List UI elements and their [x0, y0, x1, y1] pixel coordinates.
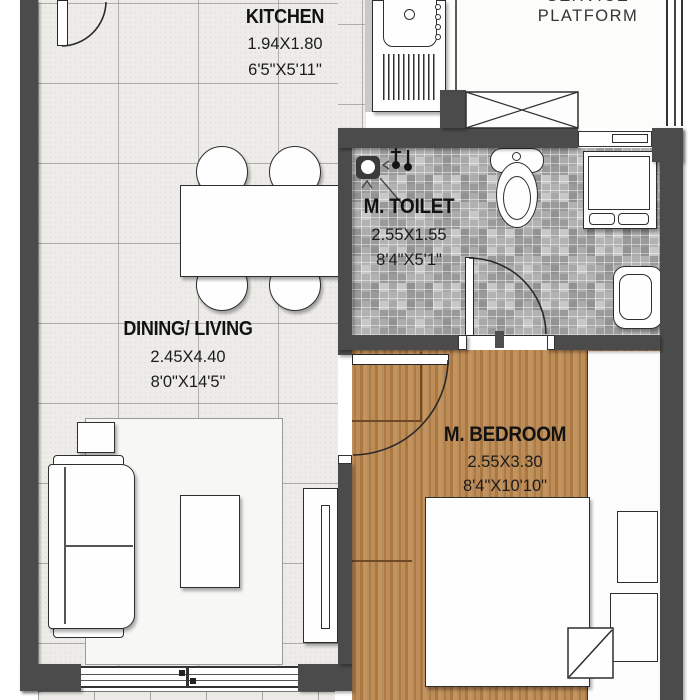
bedroom-dim-ft: 8'4"X10'10"	[423, 476, 588, 496]
toilet-bottom-wall-right	[547, 335, 660, 350]
wc-flush-button	[512, 152, 521, 161]
dining-table	[180, 185, 343, 277]
platform-name: PLATFORM	[528, 7, 648, 26]
washing-machine-panel	[618, 213, 649, 225]
wc-toilet	[488, 146, 548, 232]
floor-plan: KITCHEN 1.94X1.80 6'5"X5'11" SERVICE PLA…	[0, 0, 700, 700]
window-rail	[81, 674, 298, 675]
wash-basin	[613, 266, 663, 329]
side-table	[77, 422, 115, 453]
shower-drain	[356, 156, 380, 179]
faucet-icon	[404, 9, 415, 20]
kitchen-dim-ft: 6'5"X5'11"	[207, 60, 362, 80]
dining-living-dim-m: 2.45X4.40	[91, 347, 285, 367]
sliding-window	[81, 666, 298, 688]
nightstand	[617, 511, 658, 583]
stove-knob	[435, 4, 441, 10]
platform-left-edge	[455, 0, 457, 92]
window-latch	[179, 670, 185, 676]
shower-drain-cap	[361, 160, 375, 174]
stove-knob	[435, 34, 441, 40]
dining-living-name: DINING/ LIVING	[98, 318, 278, 342]
stove-knob	[435, 24, 441, 30]
outer-wall-left	[20, 0, 38, 691]
bedroom-label: M. BEDROOM 2.55X3.30 8'4"X10'10"	[420, 423, 590, 496]
washing-machine-lid	[588, 156, 650, 210]
sofa-seat-divider	[65, 545, 133, 547]
coffee-table	[180, 495, 240, 588]
drainboard	[383, 54, 437, 100]
outer-wall-right	[660, 128, 683, 700]
sink-basin	[383, 0, 437, 47]
wash-basin-bowl	[619, 274, 652, 320]
platform-window-rail	[674, 0, 676, 126]
ventilator-window	[578, 131, 652, 147]
kitchen-counter-sink	[372, 0, 446, 112]
sofa-body	[48, 464, 135, 629]
stove-knob	[435, 14, 441, 20]
pillar-bottom-left	[20, 664, 81, 691]
toilet-name: M. TOILET	[351, 195, 466, 220]
divider-wall-lower	[338, 463, 352, 664]
double-bed	[425, 497, 590, 687]
toilet-dim-m: 2.55X1.55	[347, 225, 471, 245]
door-stop-mark	[495, 331, 504, 348]
bedroom-door-leaf	[352, 354, 449, 365]
toilet-door-jamb	[458, 335, 467, 350]
kitchen-label: KITCHEN 1.94X1.80 6'5"X5'11"	[205, 6, 365, 80]
dining-living-dim-ft: 8'0"X14'5"	[91, 372, 285, 392]
platform-label-top-partial: SERVICE	[528, 0, 648, 6]
kitchen-name: KITCHEN	[213, 6, 357, 30]
pillar-bottom-right	[298, 664, 352, 691]
washing-machine-drawer	[589, 213, 615, 225]
bedroom-name: M. BEDROOM	[429, 423, 582, 448]
dining-living-label: DINING/ LIVING 2.45X4.40 8'0"X14'5"	[88, 318, 288, 392]
bedroom-door-sill	[338, 455, 352, 464]
counter-side-strip	[365, 0, 372, 112]
window-latch	[190, 678, 196, 684]
wood-plank-joint	[352, 560, 412, 562]
nightstand	[610, 593, 658, 662]
shaft-wall	[440, 90, 466, 128]
ventilator-sash	[612, 134, 648, 143]
toilet-dim-ft: 8'4"X5'1"	[347, 250, 471, 270]
tv-screen	[321, 505, 330, 629]
platform-label: SERVICE PLATFORM	[528, 0, 648, 26]
bedroom-dim-m: 2.55X3.30	[423, 452, 588, 472]
kitchen-toilet-wall	[338, 128, 578, 148]
toilet-door-jamb	[547, 335, 555, 350]
kitchen-dim-m: 1.94X1.80	[207, 34, 362, 54]
sofa	[48, 455, 136, 638]
balcony-strip	[38, 691, 335, 700]
wood-plank-joint	[352, 420, 422, 422]
entrance-door-leaf	[57, 0, 68, 46]
platform-window	[666, 0, 683, 126]
toilet-label: M. TOILET 2.55X1.55 8'4"X5'1"	[345, 195, 473, 270]
window-mullion	[186, 668, 189, 686]
washing-machine	[583, 151, 657, 229]
toilet-bottom-wall-left	[338, 335, 467, 350]
wc-bowl-inner	[503, 176, 531, 220]
